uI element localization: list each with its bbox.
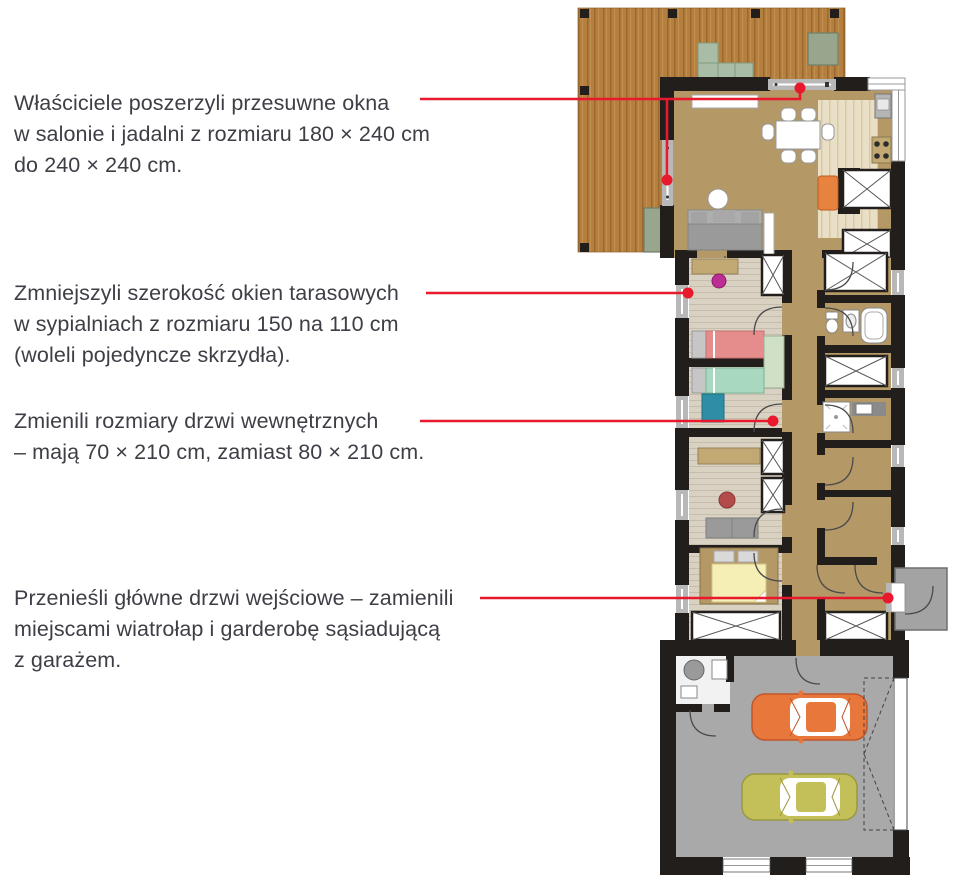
desk (698, 448, 760, 464)
annotation-main-entrance: Przenieśli główne drzwi wejściowe – zami… (14, 583, 494, 676)
figure-canvas: Właściciele poszerzyli przesuwne okna w … (0, 0, 955, 880)
callout-dot (795, 83, 806, 94)
bed-master (700, 548, 778, 604)
annotation-line: Przenieśli główne drzwi wejściowe – zami… (14, 583, 494, 614)
tv-stand (764, 213, 774, 257)
annotation-line: Zmniejszyli szerokość okien tarasowych (14, 278, 494, 309)
kitchen-sink (875, 94, 891, 118)
outdoor-table (808, 33, 838, 65)
boiler (684, 660, 704, 680)
annotation-line: Zmienili rozmiary drzwi wewnętrznych (14, 406, 494, 437)
callout-dot (883, 593, 894, 604)
annotation-line: – mają 70 × 210 cm, zamiast 80 × 210 cm. (14, 437, 494, 468)
entrance-porch (886, 568, 947, 630)
office-chair-magenta (712, 274, 726, 288)
office-chair-red (719, 492, 735, 508)
bed-pink (692, 331, 764, 358)
bedroom-wing (675, 253, 905, 647)
niche-green (764, 336, 784, 388)
garage (660, 640, 910, 875)
corridor-garage-door (796, 640, 820, 656)
small-sofa (706, 518, 758, 538)
stove (872, 137, 891, 163)
desk (692, 259, 738, 274)
annotation-line: miejscami wiatrołap i garderobę sąsiaduj… (14, 614, 494, 645)
wardrobe-x (692, 612, 780, 640)
annotation-internal-doors: Zmienili rozmiary drzwi wewnętrznych – m… (14, 406, 494, 468)
wardrobe-x (825, 612, 887, 640)
annotation-terrace-windows: Zmniejszyli szerokość okien tarasowych w… (14, 278, 494, 371)
car-orange (752, 691, 867, 744)
annotation-line: Właściciele poszerzyli przesuwne okna (14, 88, 494, 119)
wardrobe-x (762, 478, 784, 512)
wardrobe-x (762, 440, 784, 474)
callout-dot (662, 175, 673, 186)
callout-dot (683, 288, 694, 299)
sofa (688, 210, 762, 250)
wardrobe-x (825, 253, 887, 291)
wardrobe-x (843, 170, 891, 208)
car-green (742, 771, 857, 824)
annotation-line: z garażem. (14, 645, 494, 676)
bed-green (692, 368, 764, 393)
annotation-line: w sypialniach z rozmiaru 150 na 110 cm (14, 309, 494, 340)
utility-box (681, 686, 697, 698)
annotation-line: w salonie i jadalni z rozmiaru 180 × 240… (14, 119, 494, 150)
annotation-sliding-windows: Właściciele poszerzyli przesuwne okna w … (14, 88, 494, 181)
annotation-line: (woleli pojedyncze skrzydła). (14, 340, 494, 371)
wardrobe-x (825, 356, 887, 386)
utility-sink (712, 660, 727, 679)
sideboard (692, 95, 758, 108)
desk-teal (702, 394, 724, 422)
callout-dot (768, 416, 779, 427)
round-table (708, 189, 728, 209)
annotation-line: do 240 × 240 cm. (14, 150, 494, 181)
armchair-orange (818, 176, 838, 210)
wardrobe-x (762, 255, 784, 295)
